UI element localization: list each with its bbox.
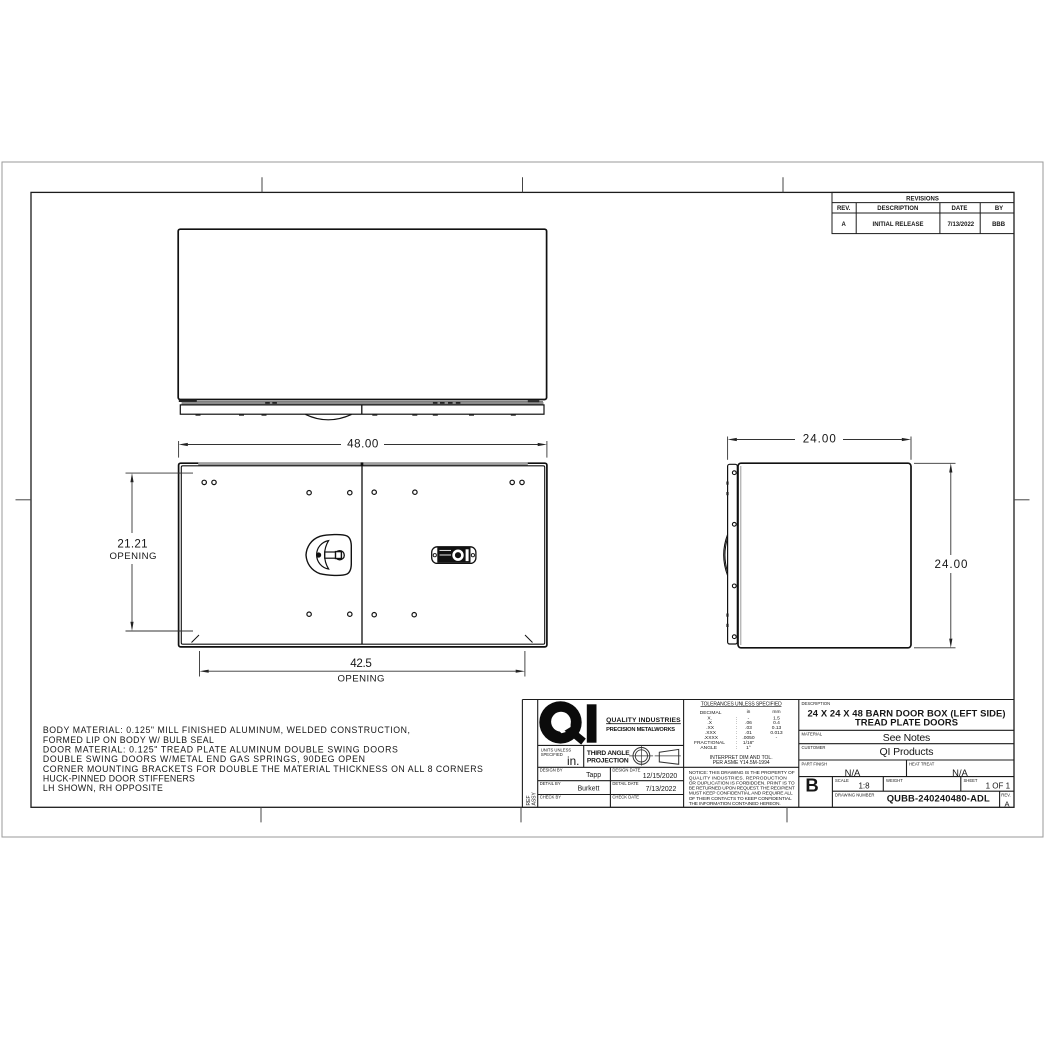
- svg-text:PRECISION METALWORKS: PRECISION METALWORKS: [606, 727, 675, 733]
- svg-text:QUBB-240240480-ADL: QUBB-240240480-ADL: [887, 792, 990, 803]
- svg-text:MUST KEEP CONFIDENTIAL AND REQ: MUST KEEP CONFIDENTIAL AND REQUIRE ALL: [689, 791, 793, 797]
- svg-text:DESCRIPTION: DESCRIPTION: [802, 701, 831, 706]
- svg-text:PER ASME Y14.5M-1994: PER ASME Y14.5M-1994: [713, 760, 770, 766]
- svg-text:DOUBLE SWING DOORS W/METAL END: DOUBLE SWING DOORS W/METAL END GAS SPRIN…: [43, 754, 365, 764]
- svg-text:DESCRIPTION: DESCRIPTION: [877, 206, 918, 212]
- svg-text:INITIAL RELEASE: INITIAL RELEASE: [873, 222, 924, 228]
- svg-text:MATERIAL: MATERIAL: [802, 732, 823, 737]
- svg-text:DATE: DATE: [952, 206, 968, 212]
- svg-text:QUALITY INDUSTRIES. REPRO: QUALITY INDUSTRIES. REPRODUCTION: [689, 775, 788, 781]
- svg-text:42.5: 42.5: [350, 657, 372, 670]
- svg-text:ANGLE: ANGLE: [700, 745, 717, 751]
- svg-text:BODY MATERIAL: 0.125" MILL FIN: BODY MATERIAL: 0.125" MILL FINISHED ALUM…: [43, 725, 410, 735]
- svg-text:.XXXX: .XXXX: [704, 735, 719, 741]
- svg-text:SCALE: SCALE: [835, 778, 849, 783]
- svg-text:7/13/2022: 7/13/2022: [646, 786, 677, 793]
- svg-text:BBB: BBB: [992, 222, 1006, 228]
- svg-text:OPENING: OPENING: [110, 551, 157, 562]
- svg-text:A: A: [842, 222, 847, 228]
- svg-text:Burkett: Burkett: [578, 786, 600, 793]
- svg-text:B: B: [805, 775, 818, 796]
- svg-text:OR DUPLICATION IS FORBIDDEN.: OR DUPLICATION IS FORBIDDEN. PRINT IS TO: [689, 780, 795, 786]
- svg-text:24.00: 24.00: [803, 433, 836, 446]
- svg-text:24.00: 24.00: [935, 558, 968, 571]
- svg-text:DESIGN DATE: DESIGN DATE: [612, 768, 640, 773]
- svg-text:.0050: .0050: [742, 735, 755, 741]
- svg-text:Tapp: Tapp: [586, 772, 601, 779]
- svg-text:HEAT TREAT: HEAT TREAT: [909, 761, 935, 766]
- svg-text:WEIGHT: WEIGHT: [886, 778, 903, 783]
- svg-text:QUALITY INDUSTRIES: QUALITY INDUSTRIES: [606, 717, 681, 724]
- svg-text:1:8: 1:8: [858, 782, 870, 791]
- svg-text:N/A: N/A: [952, 767, 968, 778]
- svg-text:.XXX: .XXX: [705, 730, 717, 736]
- svg-text:7/13/2022: 7/13/2022: [947, 222, 974, 228]
- svg-text:THIRD ANGLE: THIRD ANGLE: [587, 750, 630, 757]
- svg-text:48.00: 48.00: [347, 438, 378, 451]
- svg-text:ASSY: ASSY: [532, 791, 538, 805]
- svg-text:REV.: REV.: [837, 206, 851, 212]
- svg-text:CHECK DATE: CHECK DATE: [612, 795, 639, 800]
- svg-text:A: A: [1004, 800, 1009, 809]
- svg-text:N/A: N/A: [845, 767, 861, 778]
- svg-text:NOTICE: THIS DRAWING IS THE P: NOTICE: THIS DRAWING IS THE PROPERTY OF: [689, 770, 795, 776]
- svg-text:21.21: 21.21: [117, 537, 147, 550]
- svg-text:CORNER MOUNTING BRACKETS FOR D: CORNER MOUNTING BRACKETS FOR DOUBLE THE …: [43, 764, 483, 774]
- svg-text:SPECIFIED: SPECIFIED: [541, 752, 563, 757]
- svg-text:1 OF 1: 1 OF 1: [986, 782, 1011, 791]
- svg-text:OPENING: OPENING: [338, 674, 385, 685]
- svg-text:in.: in.: [567, 754, 579, 768]
- svg-text:OF THEIR CONTACTS TO KEEP CONF: OF THEIR CONTACTS TO KEEP CONFIDENTIAL: [689, 796, 792, 802]
- svg-text::: :: [736, 746, 737, 751]
- svg-text:REV.: REV.: [1001, 793, 1010, 798]
- svg-text:in: in: [747, 709, 751, 715]
- svg-text:LH SHOWN, RH OPPOSITE: LH SHOWN, RH OPPOSITE: [43, 783, 163, 793]
- svg-text:DOOR MATERIAL: 0.125" TREAD PL: DOOR MATERIAL: 0.125" TREAD PLATE ALUMIN…: [43, 745, 398, 755]
- svg-text:PROJECTION: PROJECTION: [587, 758, 629, 765]
- svg-text:SHEET: SHEET: [964, 778, 978, 783]
- svg-text:DECIMAL: DECIMAL: [700, 710, 722, 716]
- svg-text:DETAIL DATE: DETAIL DATE: [612, 781, 638, 786]
- svg-text:QI Products: QI Products: [880, 746, 934, 758]
- svg-text:CHECK BY: CHECK BY: [540, 795, 562, 800]
- svg-text:REVISIONS: REVISIONS: [906, 196, 939, 202]
- svg-text:TREAD PLATE DOORS: TREAD PLATE DOORS: [855, 717, 958, 728]
- svg-text:THE INFORMATION CONTAINED HERE: THE INFORMATION CONTAINED HEREON.: [689, 801, 781, 807]
- svg-text:DETAIL BY: DETAIL BY: [540, 781, 561, 786]
- svg-text:PART FINISH: PART FINISH: [802, 761, 828, 766]
- svg-text:1°: 1°: [746, 745, 751, 751]
- svg-text:DESIGN BY: DESIGN BY: [540, 768, 563, 773]
- svg-text:12/15/2020: 12/15/2020: [643, 773, 678, 780]
- svg-text:DRAWING NUMBER: DRAWING NUMBER: [835, 793, 874, 798]
- svg-text:FORMED LIP ON BODY W/ BULB SEA: FORMED LIP ON BODY W/ BULB SEAL: [43, 735, 214, 745]
- svg-text:BE RETURNED UPON REQUEST. THE: BE RETURNED UPON REQUEST. THE RECIPIENT: [689, 786, 795, 792]
- svg-text:HUCK-PINNED DOOR STIFFENERS: HUCK-PINNED DOOR STIFFENERS: [43, 774, 195, 784]
- svg-text:CUSTOMER: CUSTOMER: [802, 745, 826, 750]
- svg-text:mm: mm: [772, 710, 780, 715]
- svg-text:0.013: 0.013: [770, 730, 783, 736]
- svg-text:.01: .01: [745, 730, 752, 736]
- svg-text:BY: BY: [995, 206, 1003, 212]
- svg-text:See Notes: See Notes: [883, 732, 931, 744]
